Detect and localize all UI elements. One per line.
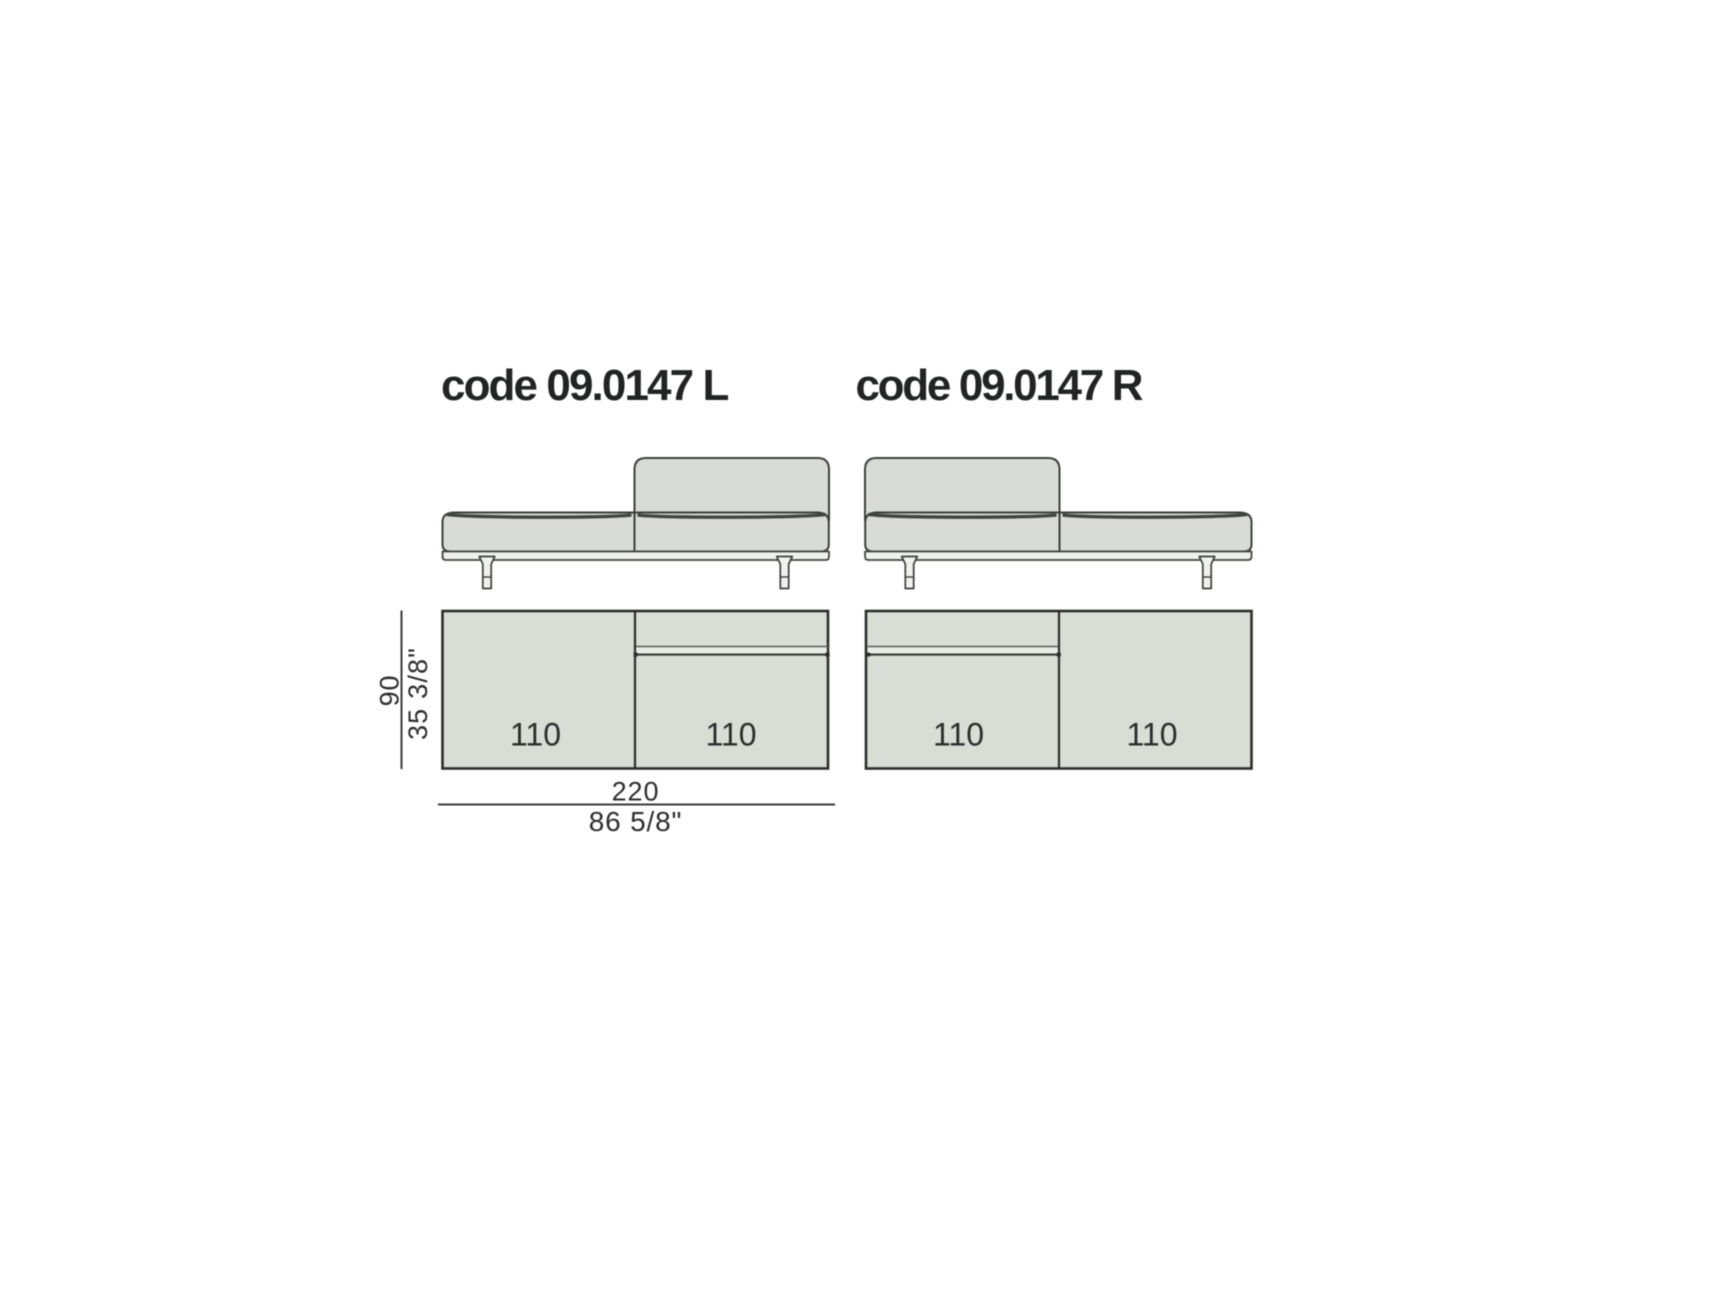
- svg-text:110: 110: [510, 716, 561, 752]
- svg-text:110: 110: [933, 716, 984, 752]
- svg-text:110: 110: [1126, 716, 1177, 752]
- svg-text:35 3/8": 35 3/8": [403, 647, 433, 740]
- svg-text:code 09.0147 L: code 09.0147 L: [441, 361, 728, 410]
- svg-text:86 5/8": 86 5/8": [589, 806, 682, 837]
- svg-text:code 09.0147 R: code 09.0147 R: [856, 361, 1143, 410]
- svg-text:110: 110: [705, 716, 756, 752]
- svg-text:220: 220: [612, 777, 660, 807]
- svg-text:90: 90: [375, 675, 405, 707]
